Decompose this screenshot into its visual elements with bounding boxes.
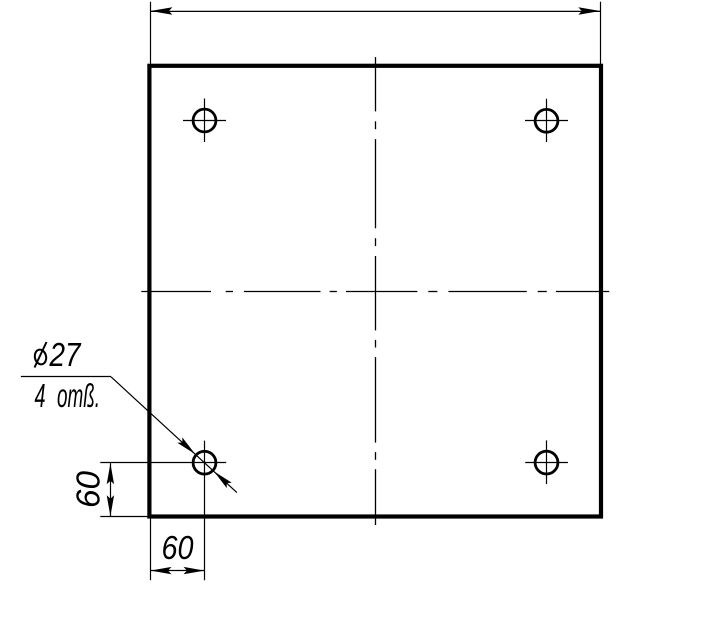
- svg-text:4: 4: [35, 377, 46, 414]
- svg-text:60: 60: [70, 470, 107, 508]
- svg-text:27: 27: [49, 336, 82, 373]
- svg-text:60: 60: [162, 529, 195, 566]
- svg-text:omß.: omß.: [57, 377, 100, 414]
